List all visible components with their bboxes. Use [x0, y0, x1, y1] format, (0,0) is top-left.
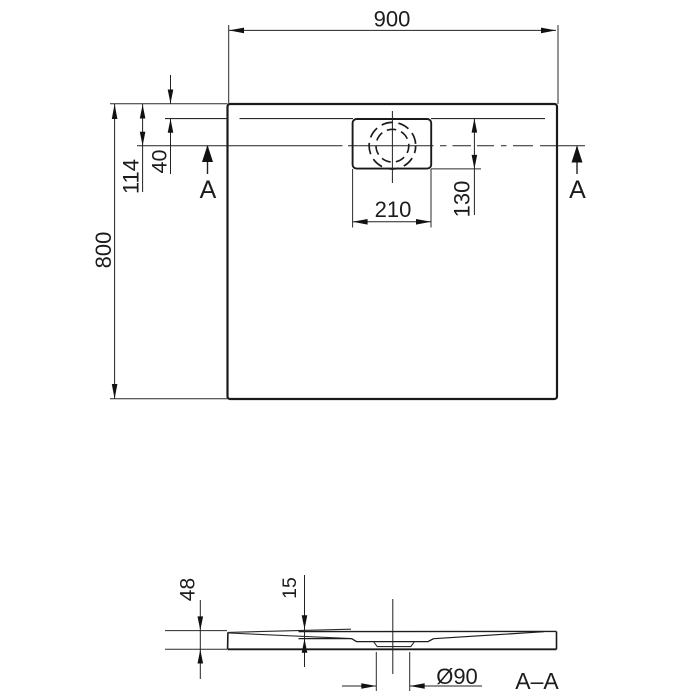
svg-text:A: A — [569, 176, 586, 204]
svg-text:114: 114 — [119, 159, 144, 194]
svg-text:A: A — [200, 176, 217, 204]
svg-text:48: 48 — [177, 578, 200, 601]
svg-text:130: 130 — [450, 181, 475, 218]
svg-text:210: 210 — [375, 197, 412, 222]
svg-text:900: 900 — [374, 7, 411, 32]
svg-text:40: 40 — [148, 150, 172, 174]
svg-text:A–A: A–A — [515, 668, 559, 694]
svg-text:15: 15 — [279, 577, 301, 599]
svg-text:800: 800 — [91, 232, 116, 269]
svg-text:Ø90: Ø90 — [436, 664, 478, 689]
